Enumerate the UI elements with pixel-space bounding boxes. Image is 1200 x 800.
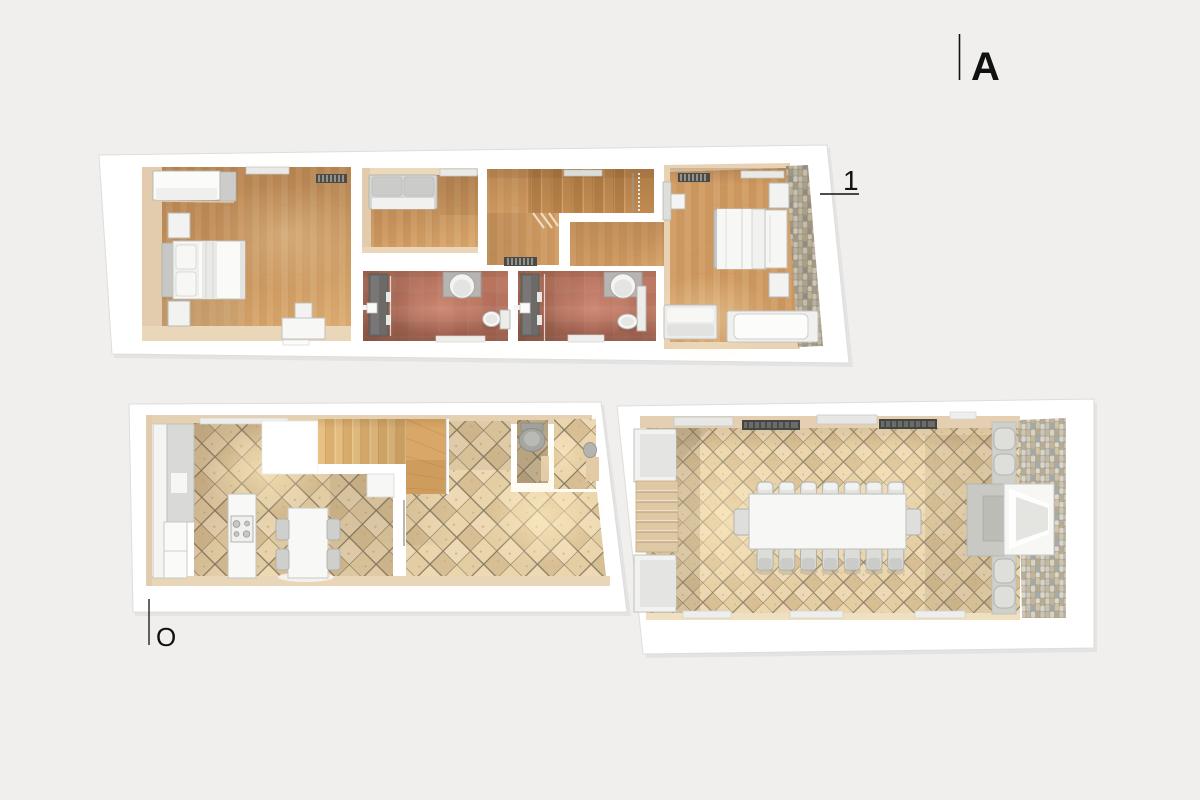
svg-text:A: A	[971, 45, 1000, 89]
svg-text:1: 1	[843, 165, 859, 196]
svg-text:O: O	[156, 622, 176, 652]
